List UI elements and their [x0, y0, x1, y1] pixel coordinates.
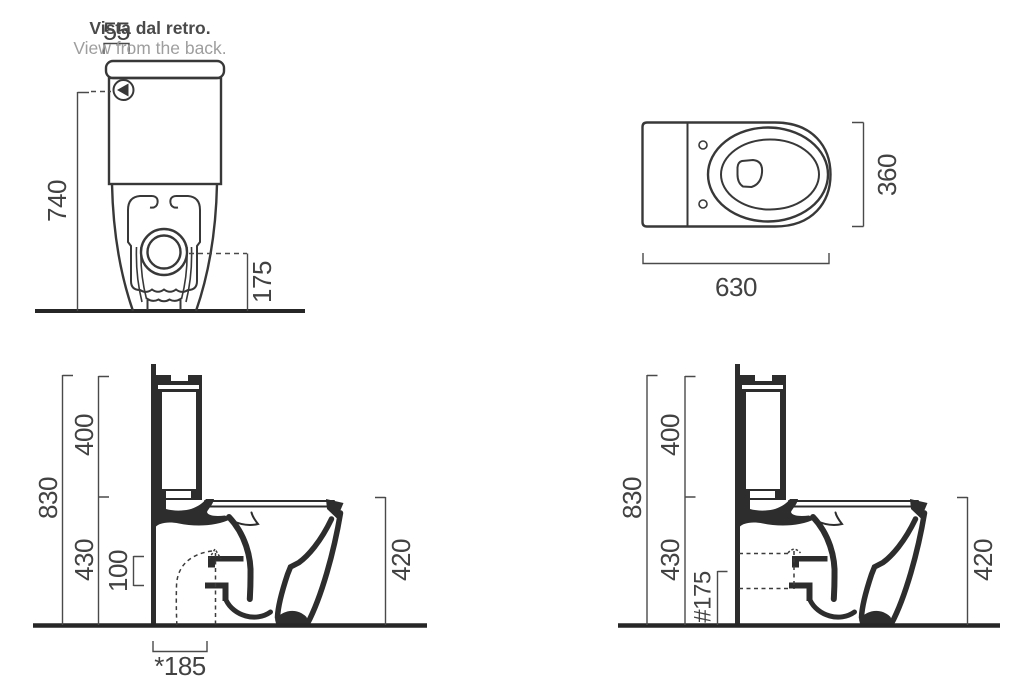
dim-630-label: 630 — [715, 272, 757, 302]
bowl-rim-outer — [708, 128, 828, 222]
recess-hook-right — [170, 196, 178, 208]
dim-175-line — [718, 571, 728, 625]
bowl-sump — [738, 160, 763, 187]
dim-740-line — [78, 92, 90, 311]
bowl-inner-front — [278, 519, 332, 618]
cistern-lid — [106, 61, 224, 78]
dim-100-label: 100 — [103, 550, 133, 592]
drain-hole-inner — [148, 236, 181, 269]
dim-175-label: #175 — [689, 571, 716, 623]
seat-hinge-hole-top — [699, 141, 707, 149]
dim-175-label: 175 — [247, 261, 277, 303]
dim-100-line — [134, 556, 145, 586]
trap-upper-wall — [208, 556, 244, 568]
seat-hinge-hole-bottom — [699, 200, 707, 208]
top-view: 630 360 — [643, 123, 903, 303]
dim-430-label: 430 — [655, 539, 685, 581]
side-view-wall-outlet: 830 400 430 420 #175 — [617, 364, 1000, 626]
recess-hook-left — [150, 196, 158, 208]
dim-420-label: 420 — [968, 539, 998, 581]
cistern-cavity — [162, 392, 196, 489]
trap-bottom-curve — [226, 600, 271, 617]
dim-185-label: *185 — [154, 651, 206, 679]
mounting-recess — [128, 196, 200, 292]
back-view: 55 740 175 Vista dal retro. View from th… — [35, 18, 305, 311]
wc-dimension-diagram: 55 740 175 Vista dal retro. View from th… — [0, 0, 1024, 679]
rim-top-lines — [205, 501, 334, 507]
dim-740-label: 740 — [42, 180, 72, 222]
dim-830-label: 830 — [33, 477, 63, 519]
lid-seam — [158, 385, 199, 389]
dim-420-line — [957, 497, 968, 625]
dim-400-label: 400 — [655, 414, 685, 456]
dim-830-line — [63, 375, 74, 625]
rim-spout-curve — [232, 513, 259, 525]
dim-360-label: 360 — [872, 154, 902, 196]
wc-side-section-body — [153, 364, 344, 626]
dim-360-line — [852, 123, 864, 227]
dim-830-label: 830 — [617, 477, 647, 519]
technical-drawing-sheet: 55 740 175 Vista dal retro. View from th… — [0, 0, 1024, 679]
dim-420-label: 420 — [386, 539, 416, 581]
dim-830-line — [647, 375, 658, 625]
dim-630-line — [643, 253, 829, 264]
view-title-italian: Vista dal retro. — [89, 18, 210, 38]
dim-430-label: 430 — [69, 539, 99, 581]
dim-185-bracket — [153, 641, 207, 652]
flush-button — [171, 375, 188, 381]
dim-420-line — [375, 497, 386, 625]
side-view-floor-outlet: 830 400 430 100 420 *185 — [33, 375, 427, 679]
view-title-english: View from the back. — [73, 38, 226, 58]
base-cutout — [148, 299, 181, 310]
dim-400-label: 400 — [69, 414, 99, 456]
flush-valve-slot — [166, 491, 191, 498]
bowl-rim-inner — [721, 140, 819, 210]
floor-outlet-dashed-bend — [176, 551, 212, 628]
